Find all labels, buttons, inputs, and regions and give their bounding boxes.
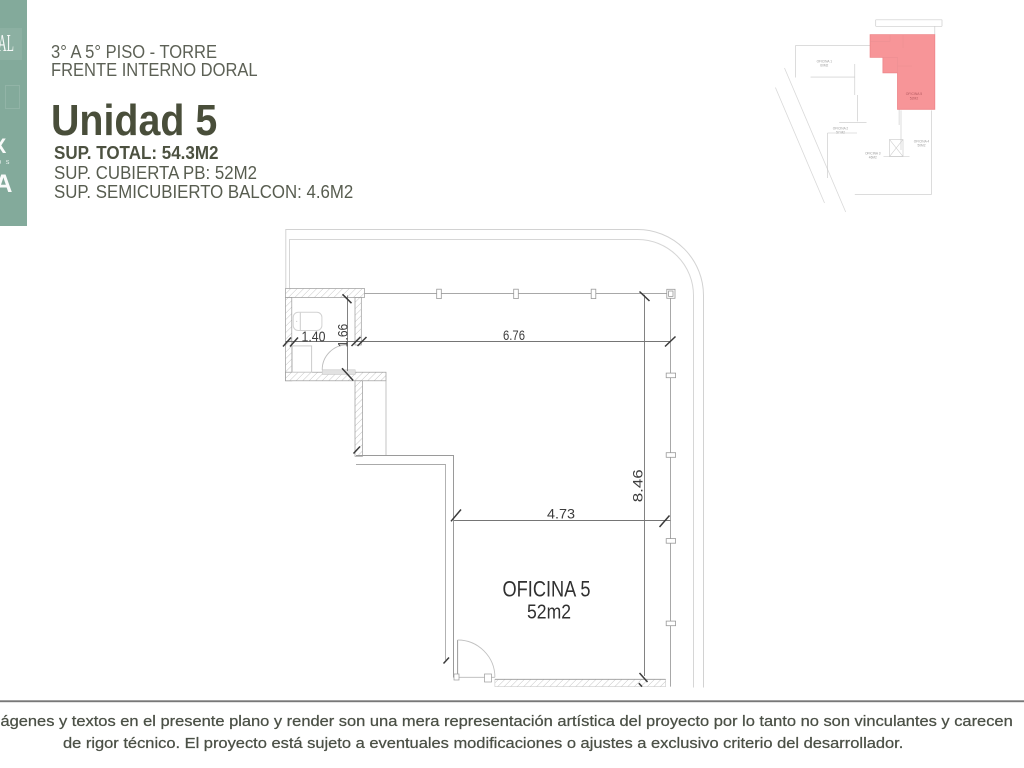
svg-text:OFICINA 5: OFICINA 5 (503, 577, 591, 602)
svg-text:8.46: 8.46 (630, 469, 646, 502)
svg-text:1.66: 1.66 (334, 324, 350, 348)
svg-text:52m2: 52m2 (527, 601, 571, 624)
svg-text:60M2: 60M2 (820, 64, 828, 68)
svg-text:OFICINA 5: OFICINA 5 (906, 92, 923, 96)
svg-text:6.76: 6.76 (503, 328, 525, 343)
svg-text:52M2: 52M2 (910, 97, 919, 101)
svg-text:46M2: 46M2 (869, 156, 877, 160)
svg-text:57 M2: 57 M2 (836, 131, 845, 135)
svg-text:4.73: 4.73 (547, 506, 575, 522)
svg-text:1.40: 1.40 (302, 328, 326, 345)
svg-text:50M2: 50M2 (918, 144, 926, 148)
